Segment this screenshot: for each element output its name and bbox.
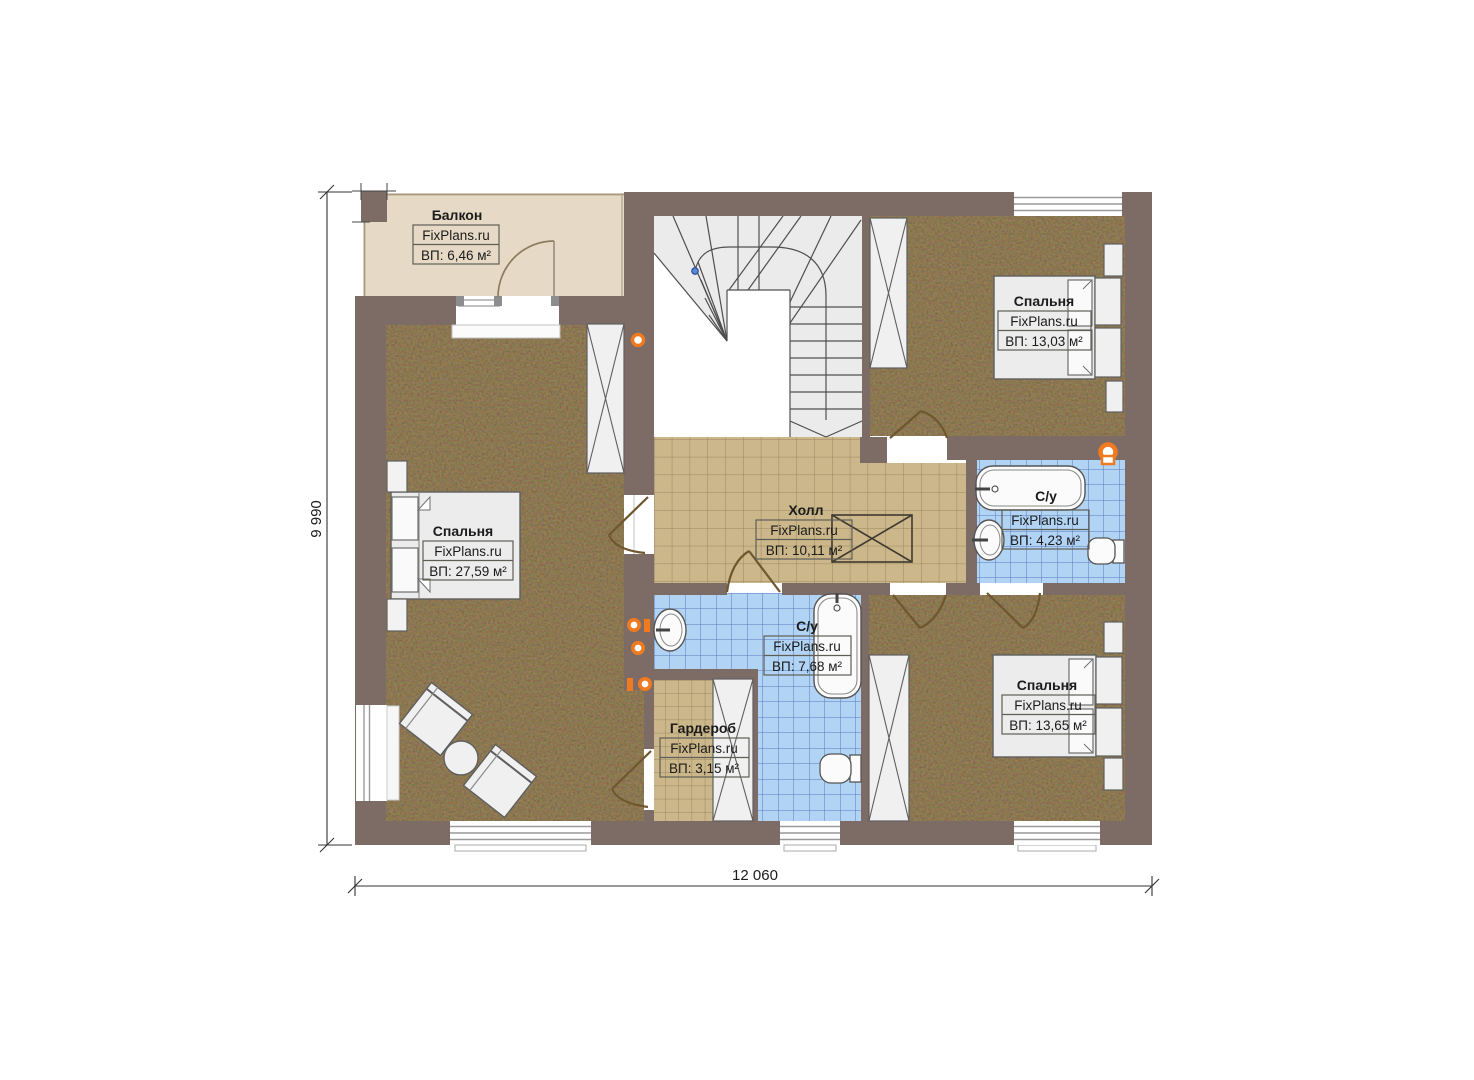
svg-text:Спальня: Спальня: [433, 523, 493, 539]
svg-text:FixPlans.ru: FixPlans.ru: [770, 523, 838, 538]
svg-text:ВП: 3,15 м²: ВП: 3,15 м²: [669, 761, 740, 776]
svg-text:ВП: 7,68 м²: ВП: 7,68 м²: [772, 659, 843, 674]
svg-text:Спальня: Спальня: [1017, 677, 1077, 693]
svg-text:9 990: 9 990: [308, 500, 325, 538]
svg-text:FixPlans.ru: FixPlans.ru: [670, 741, 738, 756]
svg-text:FixPlans.ru: FixPlans.ru: [1011, 513, 1079, 528]
svg-text:ВП: 13,03 м²: ВП: 13,03 м²: [1005, 334, 1083, 349]
svg-text:FixPlans.ru: FixPlans.ru: [422, 228, 490, 243]
svg-text:12 060: 12 060: [732, 867, 778, 884]
svg-text:FixPlans.ru: FixPlans.ru: [1010, 314, 1078, 329]
svg-text:FixPlans.ru: FixPlans.ru: [773, 639, 841, 654]
svg-text:ВП: 4,23 м²: ВП: 4,23 м²: [1010, 533, 1081, 548]
svg-text:Спальня: Спальня: [1014, 293, 1074, 309]
svg-text:ВП: 6,46 м²: ВП: 6,46 м²: [421, 248, 492, 263]
svg-text:Холл: Холл: [788, 502, 823, 518]
svg-text:Балкон: Балкон: [432, 207, 483, 223]
svg-text:ВП: 13,65 м²: ВП: 13,65 м²: [1009, 718, 1087, 733]
svg-text:ВП: 10,11 м²: ВП: 10,11 м²: [766, 543, 843, 558]
svg-text:FixPlans.ru: FixPlans.ru: [434, 544, 502, 559]
svg-text:ВП: 27,59 м²: ВП: 27,59 м²: [429, 564, 507, 579]
svg-text:FixPlans.ru: FixPlans.ru: [1014, 698, 1082, 713]
svg-text:Гардероб: Гардероб: [670, 720, 737, 736]
svg-text:С/у: С/у: [796, 618, 818, 634]
svg-text:С/у: С/у: [1035, 488, 1057, 504]
